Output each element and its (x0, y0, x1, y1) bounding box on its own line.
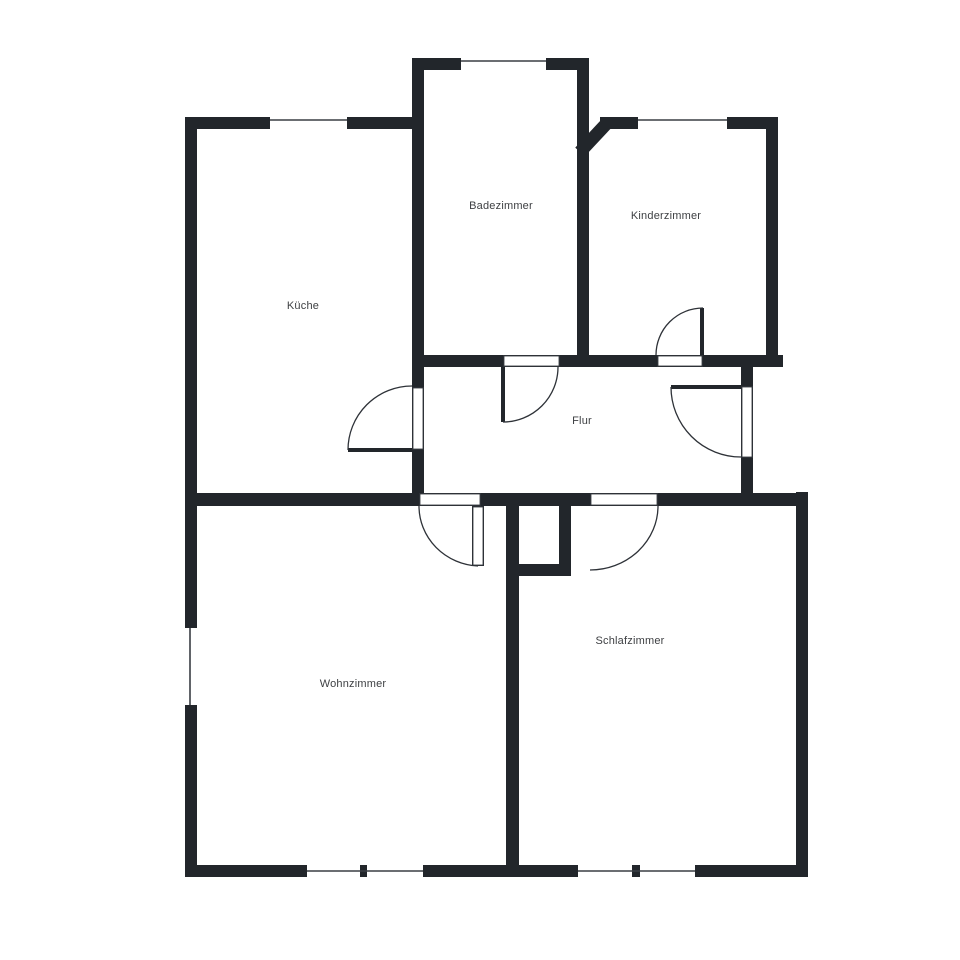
wall-bottom-wohn-right (423, 865, 519, 877)
schlaf-door-opening (591, 494, 658, 506)
wall-kinder-top-right (727, 117, 778, 129)
walls-layer (185, 58, 808, 877)
room-label-wohnzimmer: Wohnzimmer (320, 678, 387, 690)
wohn-door-opening (420, 494, 481, 506)
wall-kueche-flur-divider-upper (412, 58, 424, 387)
kueche-door-leaf (348, 448, 412, 452)
wall-flur-bottom-mid (481, 493, 590, 506)
floorplan-page: Küche Badezimmer Kinderzimmer Flur Wohnz… (0, 0, 960, 960)
wall-flur-top-right (703, 355, 783, 367)
kueche-door-opening (413, 388, 424, 450)
wall-kueche-top-left (185, 117, 270, 129)
bad-door-leaf (501, 367, 505, 422)
entrance-door-leaf (671, 385, 741, 389)
wall-flur-bottom-right (658, 493, 808, 506)
floor-plan-svg (0, 0, 960, 960)
kinder-door-opening (658, 356, 703, 367)
door-openings-layer (413, 356, 753, 506)
wall-kueche-top-right (347, 117, 424, 129)
wall-wohn-schlaf-divider (506, 506, 519, 877)
entrance-door-opening (742, 387, 753, 458)
room-label-kueche: Küche (287, 300, 319, 312)
room-label-badezimmer: Badezimmer (469, 200, 533, 212)
wall-schlafzimmer-right (796, 492, 808, 877)
room-label-kinderzimmer: Kinderzimmer (631, 210, 701, 222)
schlaf-door-arc (590, 506, 658, 570)
entrance-door-arc (671, 387, 741, 457)
wall-flur-top-mid (560, 355, 657, 367)
wall-flur-top-left (412, 355, 503, 367)
wohn-door-arc (419, 506, 478, 566)
wall-flur-bottom-left (185, 493, 419, 506)
kinder-door-leaf (700, 308, 704, 355)
wall-bottom-schlaf-left (506, 865, 578, 877)
wall-bottom-schlaf-right (695, 865, 808, 877)
wall-entrance-wall-lower (741, 458, 753, 493)
wall-shaft-bottom-stub (506, 564, 571, 576)
room-label-flur: Flur (572, 415, 592, 427)
wall-outer-left-upper (185, 117, 197, 628)
wall-bottom-wohn-left (185, 865, 307, 877)
wall-shaft-right (559, 506, 571, 564)
windows-layer (190, 61, 727, 871)
kueche-door-arc (348, 386, 412, 450)
wall-kinderzimmer-right (766, 117, 778, 367)
wall-bad-top-left (412, 58, 461, 70)
door-leaves-layer (348, 308, 741, 565)
wall-outer-left-lower (185, 705, 197, 877)
room-label-schlafzimmer: Schlafzimmer (595, 635, 664, 647)
bad-door-opening (504, 356, 560, 367)
wohn-door-leaf (473, 507, 484, 566)
bad-door-arc (503, 367, 558, 422)
door-arcs-layer (348, 308, 741, 570)
wall-bad-top-right (546, 58, 589, 70)
wall-bad-kinder-divider (577, 58, 589, 367)
kinder-door-arc (656, 308, 703, 355)
